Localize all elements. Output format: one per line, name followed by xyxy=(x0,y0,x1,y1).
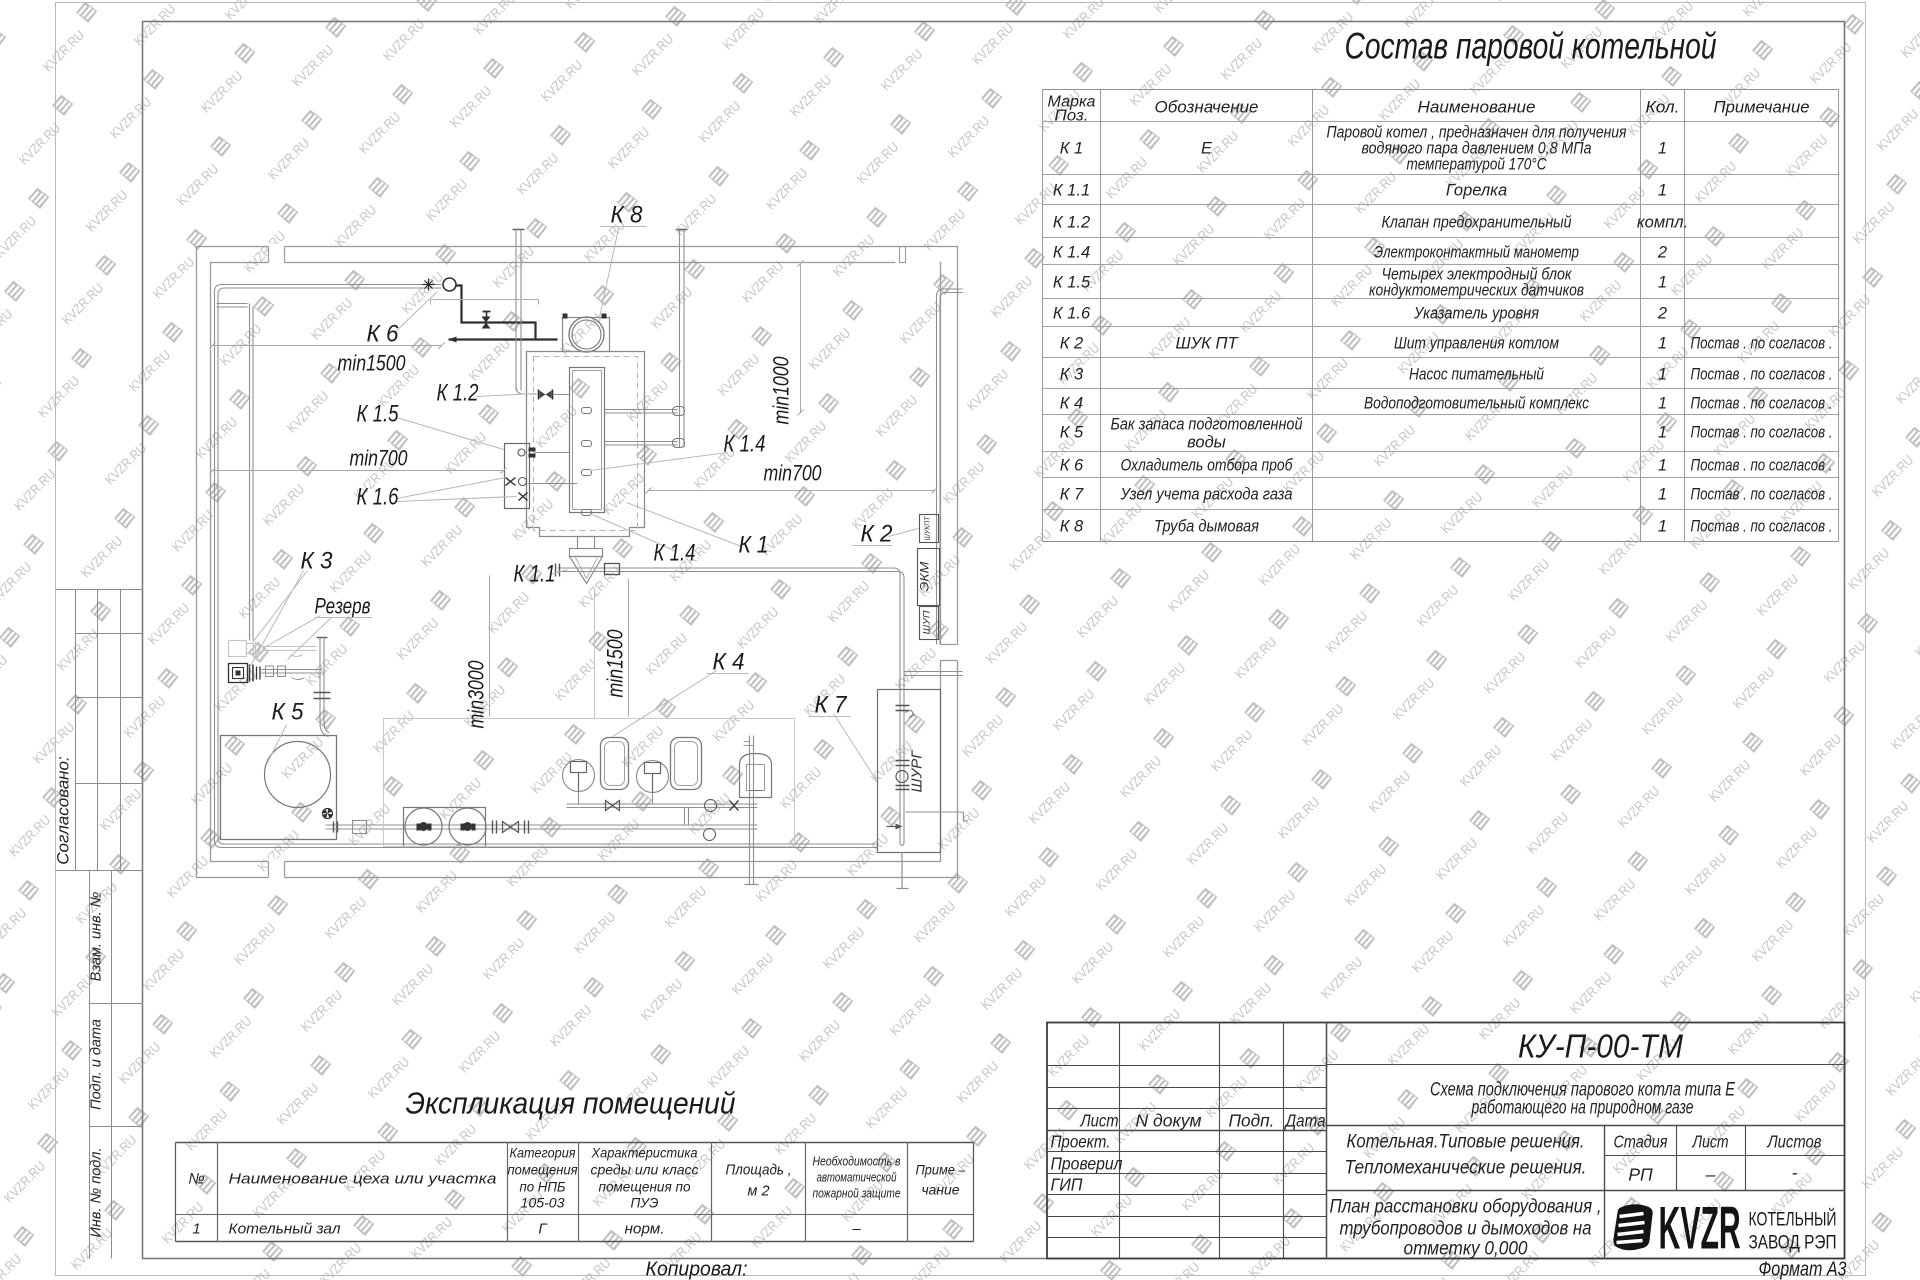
svg-text:105-03: 105-03 xyxy=(521,1195,565,1211)
svg-text:К 1.1: К 1.1 xyxy=(514,561,556,588)
svg-text:KVZR: KVZR xyxy=(1659,1195,1741,1262)
svg-text:пожарной защите: пожарной защите xyxy=(813,1187,901,1201)
svg-text:К 1.2: К 1.2 xyxy=(437,380,479,407)
svg-text:Поз.: Поз. xyxy=(1055,108,1089,125)
svg-text:Приме –: Приме – xyxy=(916,1162,966,1178)
svg-text:К 1: К 1 xyxy=(1060,140,1084,158)
svg-text:автоматической: автоматической xyxy=(817,1171,897,1185)
svg-text:температурой 170°С: температурой 170°С xyxy=(1407,156,1547,174)
svg-text:Резерв: Резерв xyxy=(315,594,371,619)
svg-text:Котельный зал: Котельный зал xyxy=(229,1221,342,1238)
svg-text:Обозначение: Обозначение xyxy=(1155,98,1259,117)
svg-text:2: 2 xyxy=(1657,305,1667,323)
svg-text:К 1.4: К 1.4 xyxy=(1053,244,1090,262)
svg-text:помещения: помещения xyxy=(508,1162,578,1178)
svg-text:РП: РП xyxy=(1628,1165,1653,1185)
svg-text:К 6: К 6 xyxy=(1060,457,1084,475)
svg-text:Примечание: Примечание xyxy=(1714,98,1810,117)
svg-text:Наименование: Наименование xyxy=(1418,98,1536,117)
svg-text:Труба дымовая: Труба дымовая xyxy=(1154,518,1259,536)
svg-text:Тепломеханические решения.: Тепломеханические решения. xyxy=(1345,1158,1587,1179)
svg-text:Водоподготовительный комплекс: Водоподготовительный комплекс xyxy=(1364,395,1590,413)
svg-text:К 1.4: К 1.4 xyxy=(654,540,696,567)
svg-text:К 1: К 1 xyxy=(739,532,769,559)
svg-text:Характеристика: Характеристика xyxy=(591,1145,698,1161)
svg-text:Узел учета расхода газа: Узел учета расхода газа xyxy=(1120,486,1293,504)
svg-text:Формат А3: Формат А3 xyxy=(1759,1259,1847,1280)
svg-text:К 8: К 8 xyxy=(1060,518,1084,536)
svg-text:К 5: К 5 xyxy=(272,699,305,726)
svg-text:Копировал:: Копировал: xyxy=(646,1259,748,1280)
svg-text:К 1.5: К 1.5 xyxy=(357,401,399,428)
svg-text:-: - xyxy=(1792,1163,1798,1183)
svg-text:ШУК ПТ: ШУК ПТ xyxy=(1175,335,1239,353)
svg-text:Шит управления котлом: Шит управления котлом xyxy=(1394,335,1559,353)
svg-text:по НПБ: по НПБ xyxy=(520,1179,566,1195)
svg-text:Стадия: Стадия xyxy=(1614,1132,1668,1152)
svg-text:min3000: min3000 xyxy=(464,660,489,729)
svg-text:К 8: К 8 xyxy=(611,202,644,229)
svg-text:min700: min700 xyxy=(350,446,409,471)
svg-text:помещения по: помещения по xyxy=(599,1179,691,1195)
svg-text:1: 1 xyxy=(1658,518,1667,536)
svg-text:К 1.5: К 1.5 xyxy=(1053,274,1091,292)
svg-text:–: – xyxy=(1705,1165,1716,1185)
svg-text:К 1.4: К 1.4 xyxy=(724,431,766,458)
svg-text:Постав . по согласов .: Постав . по согласов . xyxy=(1691,486,1833,504)
svg-text:К 5: К 5 xyxy=(1060,424,1084,442)
svg-text:КУ-П-00-ТМ: КУ-П-00-ТМ xyxy=(1518,1028,1683,1065)
svg-text:чание: чание xyxy=(922,1182,960,1198)
svg-text:К 2: К 2 xyxy=(1060,335,1084,353)
svg-text:План расстановки оборудования: План расстановки оборудования , xyxy=(1330,1197,1602,1218)
svg-text:К 1.2: К 1.2 xyxy=(1053,214,1090,232)
svg-text:Е: Е xyxy=(1201,140,1213,158)
svg-text:Дата: Дата xyxy=(1284,1111,1326,1131)
svg-text:Проект.: Проект. xyxy=(1051,1132,1111,1152)
svg-text:1: 1 xyxy=(1658,140,1667,158)
svg-text:компл.: компл. xyxy=(1637,214,1688,232)
svg-text:1: 1 xyxy=(1658,335,1667,353)
svg-text:Наименование цеха или участка: Наименование цеха или участка xyxy=(229,1171,497,1188)
svg-text:КОТЕЛЬНЫЙ: КОТЕЛЬНЫЙ xyxy=(1749,1209,1837,1231)
svg-text:К 3: К 3 xyxy=(301,548,334,575)
svg-text:работающего на природном газе: работающего на природном газе xyxy=(1471,1098,1694,1119)
svg-text:Постав . по согласов .: Постав . по согласов . xyxy=(1691,366,1833,384)
svg-text:Лист: Лист xyxy=(1080,1111,1119,1131)
svg-text:К 7: К 7 xyxy=(815,692,849,719)
svg-text:Кол.: Кол. xyxy=(1646,98,1680,117)
svg-text:ГИП: ГИП xyxy=(1051,1175,1083,1195)
svg-text:Подп.: Подп. xyxy=(1229,1111,1275,1131)
svg-text:ПУЭ: ПУЭ xyxy=(631,1195,659,1211)
svg-text:К 4: К 4 xyxy=(713,649,745,676)
svg-text:Постав . по согласов .: Постав . по согласов . xyxy=(1691,395,1833,413)
svg-text:К 1.6: К 1.6 xyxy=(357,484,399,511)
svg-text:Инв. № подл.: Инв. № подл. xyxy=(89,1148,105,1238)
svg-text:Насос питательный: Насос питательный xyxy=(1409,366,1544,384)
svg-text:ШУКПТ: ШУКПТ xyxy=(925,516,932,541)
svg-text:Клапан предохранительный: Клапан предохранительный xyxy=(1382,214,1572,232)
svg-text:min1000: min1000 xyxy=(769,356,794,425)
svg-text:2: 2 xyxy=(1657,244,1667,262)
svg-text:min1500: min1500 xyxy=(338,351,407,376)
svg-text:воды: воды xyxy=(1187,434,1226,452)
svg-text:Необходимость в: Необходимость в xyxy=(813,1155,901,1169)
svg-text:Котельная.Типовые решения.: Котельная.Типовые решения. xyxy=(1347,1132,1585,1153)
svg-text:Подп. и дата: Подп. и дата xyxy=(89,1019,105,1110)
svg-text:К 7: К 7 xyxy=(1060,486,1084,504)
svg-text:ЗАВОД РЭП: ЗАВОД РЭП xyxy=(1749,1233,1837,1254)
svg-text:среды или класс: среды или класс xyxy=(591,1162,699,1178)
svg-text:1: 1 xyxy=(1658,395,1667,413)
svg-text:Состав паровой котельной: Состав паровой котельной xyxy=(1345,26,1717,67)
svg-text:отметку 0,000: отметку 0,000 xyxy=(1404,1239,1528,1260)
svg-text:Категория: Категория xyxy=(510,1145,576,1161)
svg-text:Площадь ,: Площадь , xyxy=(726,1162,792,1179)
svg-text:Проверил: Проверил xyxy=(1051,1154,1123,1174)
svg-text:1: 1 xyxy=(1658,366,1667,384)
svg-text:1: 1 xyxy=(1658,457,1667,475)
svg-text:Постав . по согласов .: Постав . по согласов . xyxy=(1691,335,1833,353)
svg-text:Охладитель отбора проб: Охладитель отбора проб xyxy=(1121,457,1294,475)
svg-text:№: № xyxy=(188,1171,204,1188)
svg-text:Экспликация помещений: Экспликация помещений xyxy=(406,1086,736,1121)
svg-text:К 4: К 4 xyxy=(1060,395,1084,413)
svg-text:Бак запаса подготовленной: Бак запаса подготовленной xyxy=(1111,416,1303,434)
svg-text:К 3: К 3 xyxy=(1060,366,1084,384)
svg-text:1: 1 xyxy=(1658,424,1667,442)
svg-text:Листов: Листов xyxy=(1767,1132,1822,1152)
svg-text:ШУП: ШУП xyxy=(922,610,932,635)
svg-text:1: 1 xyxy=(1658,274,1667,292)
svg-text:Горелка: Горелка xyxy=(1446,182,1507,200)
svg-text:min1500: min1500 xyxy=(603,629,628,698)
svg-text:К 2: К 2 xyxy=(861,521,893,548)
svg-text:трубопроводов и дымоходов на: трубопроводов и дымоходов на xyxy=(1340,1219,1592,1240)
svg-text:м 2: м 2 xyxy=(748,1183,771,1200)
svg-text:ЭКМ: ЭКМ xyxy=(918,562,932,592)
svg-text:К 6: К 6 xyxy=(367,321,400,348)
svg-text:–: – xyxy=(851,1221,861,1238)
svg-text:Постав . по согласов .: Постав . по согласов . xyxy=(1691,457,1833,475)
svg-text:Взам. инв. №: Взам. инв. № xyxy=(89,891,105,981)
svg-text:Лист: Лист xyxy=(1692,1132,1729,1152)
svg-text:кондуктометрических датчиков: кондуктометрических датчиков xyxy=(1369,282,1584,300)
svg-text:Постав . по согласов .: Постав . по согласов . xyxy=(1691,424,1833,442)
svg-text:1: 1 xyxy=(192,1221,200,1238)
svg-text:К 1.1: К 1.1 xyxy=(1053,182,1090,200)
svg-text:норм.: норм. xyxy=(625,1221,665,1238)
svg-text:min700: min700 xyxy=(764,461,823,486)
svg-text:Электроконтактный манометр: Электроконтактный манометр xyxy=(1374,244,1579,262)
svg-text:N докум: N докум xyxy=(1136,1111,1202,1131)
svg-text:Согласовано:: Согласовано: xyxy=(54,756,73,865)
svg-text:Постав . по согласов .: Постав . по согласов . xyxy=(1691,518,1833,536)
svg-text:1: 1 xyxy=(1658,182,1667,200)
svg-text:К 1.6: К 1.6 xyxy=(1053,305,1091,323)
svg-text:Указатель уровня: Указатель уровня xyxy=(1413,305,1539,323)
svg-text:1: 1 xyxy=(1658,486,1667,504)
svg-text:ШУРГ: ШУРГ xyxy=(909,749,926,793)
